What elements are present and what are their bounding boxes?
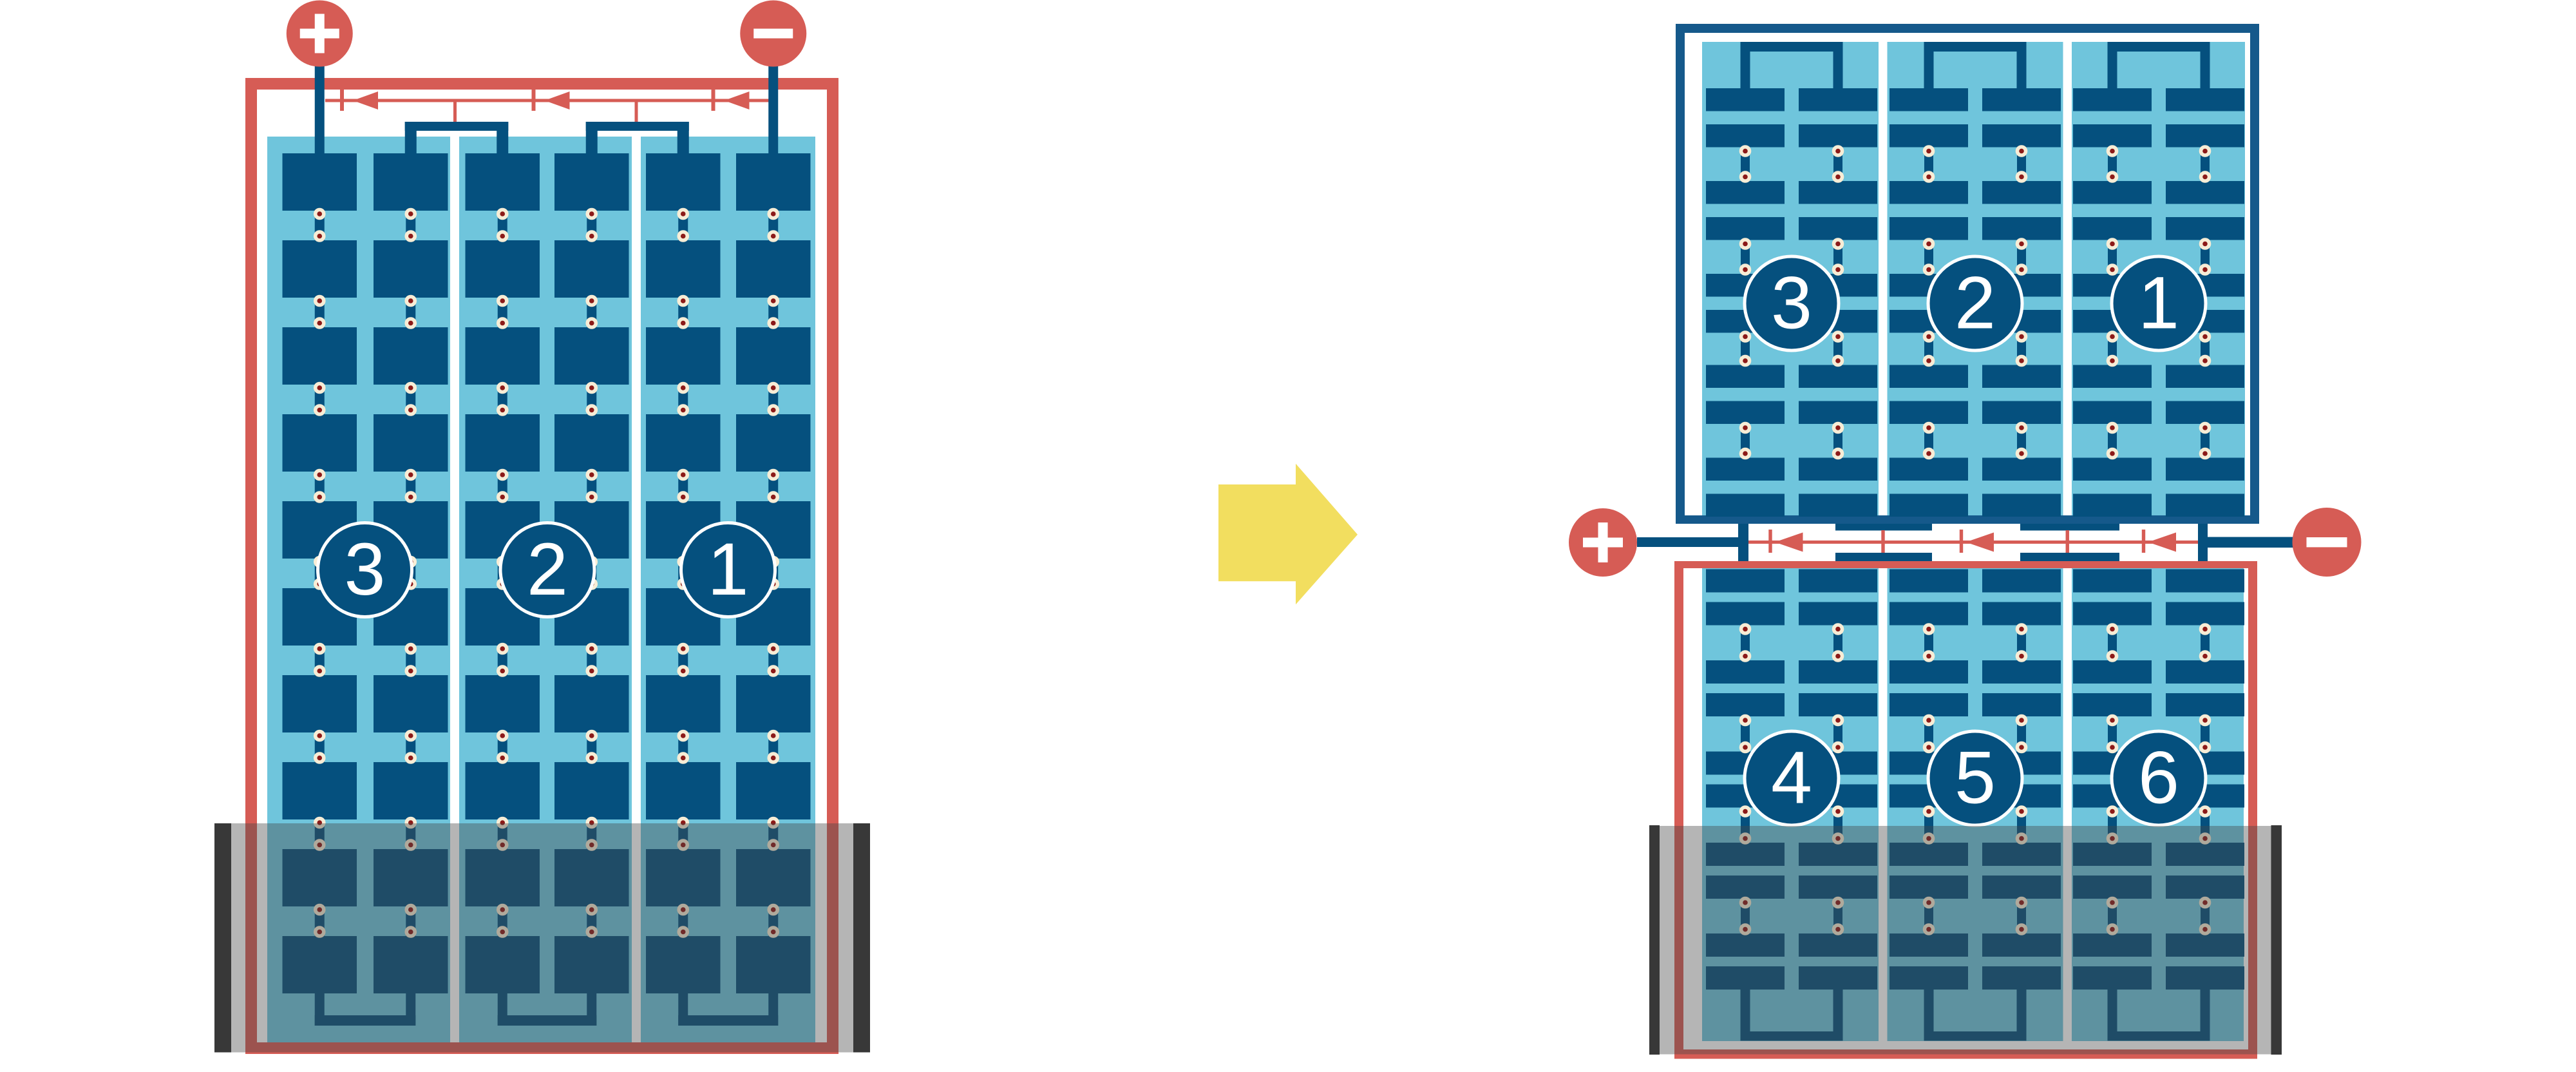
- svg-text:6: 6: [2138, 737, 2179, 819]
- svg-text:1: 1: [2138, 262, 2179, 345]
- svg-text:4: 4: [1771, 737, 1812, 819]
- svg-text:5: 5: [1955, 737, 1996, 819]
- svg-text:3: 3: [345, 528, 386, 611]
- svg-text:1: 1: [708, 528, 749, 611]
- svg-text:2: 2: [1955, 262, 1996, 345]
- svg-text:2: 2: [527, 528, 568, 611]
- svg-text:3: 3: [1771, 262, 1812, 345]
